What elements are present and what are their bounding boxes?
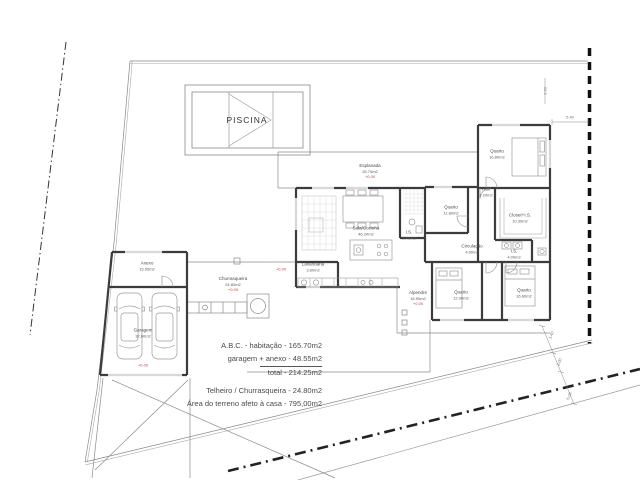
room-area: 46.20m2	[353, 231, 380, 236]
room-label-is2: I.S. 4.00m2	[507, 249, 520, 260]
level-marker: +0.00	[219, 287, 248, 292]
boundary-dashdot-left	[30, 42, 66, 335]
room-area: 10.30m2	[509, 218, 531, 223]
room-area: 15.95m2	[139, 266, 155, 271]
floor-plan-sheet: PISCINA Esplanada 26.70m2 +0.00 Sala/Coz…	[0, 0, 640, 480]
room-area: 3.80m2	[302, 267, 324, 272]
room-name: Circulação	[461, 244, 482, 250]
room-label-anexo: Anexo 15.95m2	[139, 261, 155, 272]
room-area: 12.00m2	[453, 295, 469, 300]
room-label-alpendre: Alpendre 18.90m2 +0.00	[409, 290, 427, 306]
floor-plan-drawing	[0, 0, 640, 480]
room-area: 16.60m2	[516, 293, 532, 298]
room-area: 2.20m2	[479, 192, 492, 197]
room-name: Closet+I.S.	[509, 213, 531, 219]
room-area: 32.60m2	[134, 333, 153, 338]
room-label-quarto-sw: Quarto 12.00m2	[453, 290, 469, 301]
room-area: 3.40m2	[402, 235, 415, 240]
car-icon	[150, 293, 180, 359]
room-name: Quarto	[489, 149, 505, 155]
room-label-closet: Closet+I.S. 10.30m2	[509, 213, 531, 224]
summary-garagem-anexo: garagem + anexo - 48.55m2	[228, 354, 322, 363]
room-label-lavandaria: Lavandaria 3.80m2	[302, 262, 324, 273]
room-name: Quarto	[443, 205, 458, 211]
living-rug	[302, 196, 336, 250]
level-marker: +0.00	[409, 301, 427, 306]
dimension-label: 2.60	[543, 87, 548, 95]
room-label-circulacao: Circulação 4.60m2	[461, 244, 482, 255]
summary-divider	[260, 366, 322, 367]
room-label-quarto-meio: Quarto 11.80m2	[443, 205, 458, 216]
room-label-hall: Hall 2.20m2	[479, 187, 492, 198]
bathroom1-fixtures	[402, 190, 423, 233]
room-area: 26.70m2	[359, 169, 380, 174]
pool-label: PISCINA	[226, 115, 267, 125]
room-area: 4.60m2	[461, 249, 482, 254]
summary-terreno: Área do terreno afeto à casa - 795,00m2	[187, 399, 322, 408]
dining-table	[343, 190, 383, 228]
room-label-esplanada: Esplanada 26.70m2 +0.00	[359, 163, 380, 179]
level-marker: +0.00	[359, 174, 380, 179]
room-name: Alpendre	[409, 290, 427, 296]
room-label-sala-cozinha: Sala/Cozinha 46.20m2	[353, 226, 380, 237]
bed-bottom-left	[436, 268, 462, 308]
room-label-is1: I.S. 3.40m2	[402, 230, 415, 241]
room-label-churrasqueira: Churrasqueira 24.80m2 +0.00	[219, 276, 248, 292]
summary-telheiro: Telheiro / Churrasqueira - 24.80m2	[206, 386, 322, 395]
room-area: 4.00m2	[507, 254, 520, 259]
room-label-quarto-se: Quarto 16.60m2	[516, 288, 532, 299]
dimension-label: 5.40	[566, 115, 574, 120]
car-icon	[115, 293, 145, 359]
room-name: Garagem	[134, 328, 153, 334]
room-name: Quarto	[453, 290, 469, 296]
room-area: 11.80m2	[443, 210, 458, 215]
summary-habitacao: A.B.C. - habitação - 165.70m2	[221, 341, 322, 350]
room-area: 16.80m2	[489, 154, 505, 159]
bed-top-right	[512, 138, 546, 176]
room-label-garagem: Garagem 32.60m2	[134, 328, 153, 339]
summary-total: total - 214.25m2	[268, 368, 322, 377]
dimension-lines	[539, 78, 588, 405]
grill-icon	[251, 299, 266, 314]
road-edge-line	[298, 385, 640, 480]
room-name: Churrasqueira	[219, 276, 248, 282]
room-name: Esplanada	[359, 163, 380, 169]
room-area: 18.90m2	[409, 296, 427, 301]
room-name: Sala/Cozinha	[353, 226, 380, 232]
bbq-counter	[187, 294, 269, 318]
level-marker-patio: +0.00	[276, 267, 286, 272]
bed-bottom-right	[505, 266, 535, 306]
room-name: Anexo	[139, 261, 155, 267]
room-name: Lavandaria	[302, 262, 324, 268]
room-name: Quarto	[516, 288, 532, 294]
room-label-quarto-ne: Quarto 16.80m2	[489, 149, 505, 160]
kitchen-island	[350, 240, 392, 260]
road-axis-line	[228, 369, 640, 471]
level-marker-garagem: +0.00	[138, 363, 148, 368]
